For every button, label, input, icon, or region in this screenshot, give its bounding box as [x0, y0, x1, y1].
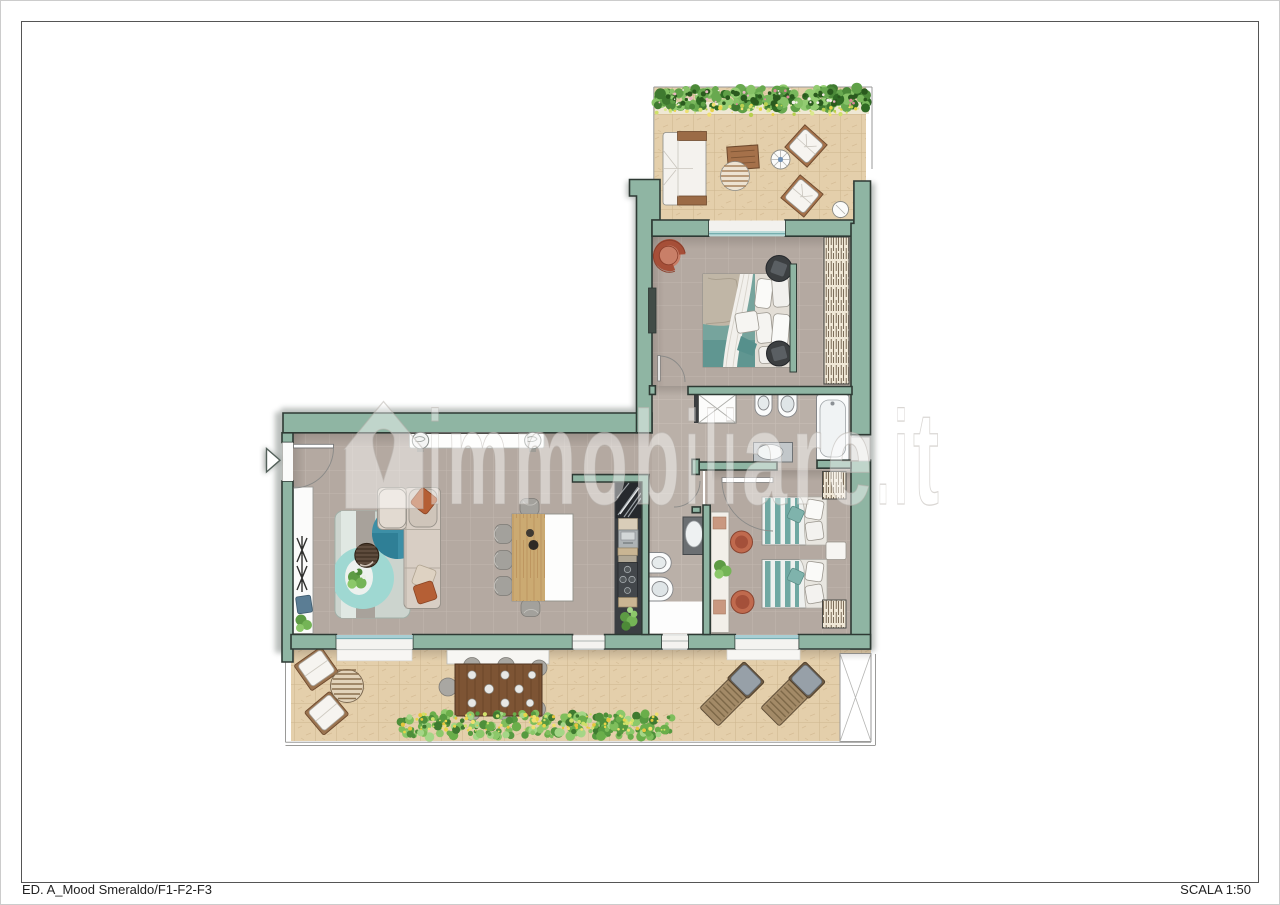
svg-text:b: b — [633, 385, 680, 533]
svg-text:t: t — [913, 385, 939, 533]
svg-text:r: r — [792, 385, 822, 533]
svg-text:i: i — [894, 385, 908, 533]
svg-text:i: i — [685, 385, 699, 533]
svg-text:ED. A_Mood Smeraldo/F1-F2-F3: ED. A_Mood Smeraldo/F1-F2-F3 — [22, 882, 212, 897]
svg-text:i: i — [428, 385, 442, 533]
svg-text:o: o — [581, 385, 628, 533]
svg-text:i: i — [723, 385, 737, 533]
svg-text:SCALA 1:50: SCALA 1:50 — [1180, 882, 1251, 897]
svg-text:m: m — [447, 385, 509, 533]
svg-text:m: m — [514, 385, 576, 533]
svg-text:e: e — [827, 385, 872, 533]
svg-text:a: a — [742, 385, 788, 533]
svg-text:.: . — [877, 385, 889, 533]
svg-text:l: l — [704, 385, 718, 533]
